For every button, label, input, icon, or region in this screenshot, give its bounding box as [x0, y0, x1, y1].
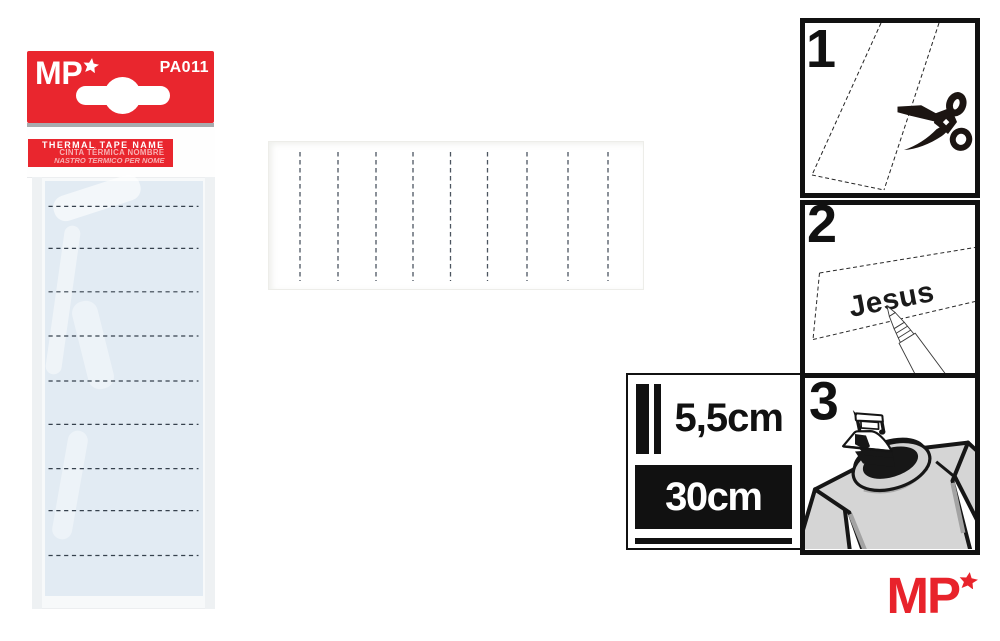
svg-text:3: 3: [809, 378, 839, 432]
